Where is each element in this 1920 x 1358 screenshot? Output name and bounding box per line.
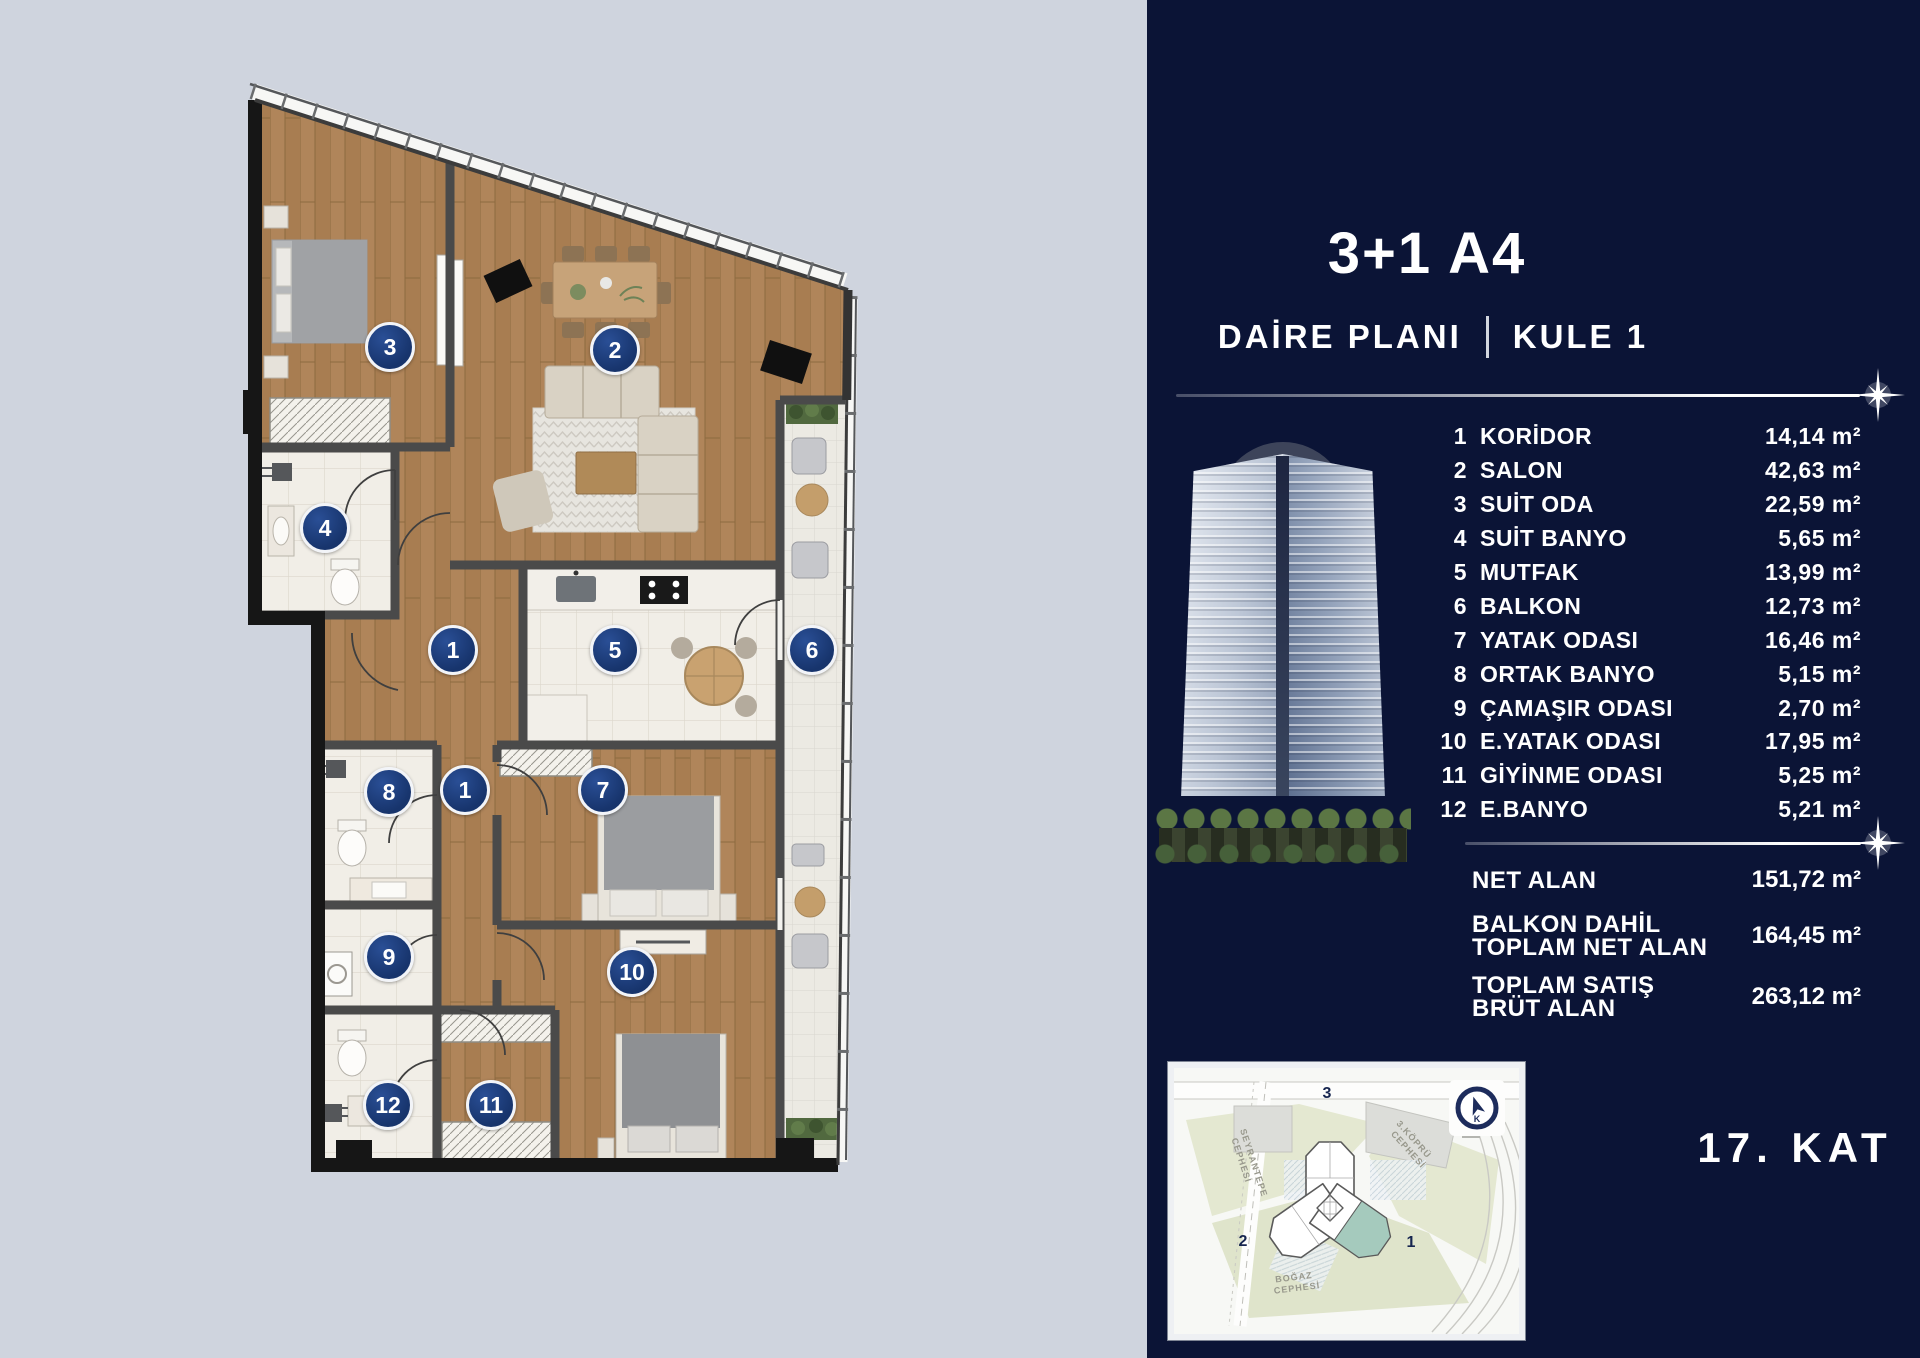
room-marker: 11 [466,1080,516,1130]
room-no: 8 [1425,661,1480,688]
bed-eyatak [598,1034,726,1164]
room-name: E.YATAK ODASI [1480,728,1765,755]
summary-label: TOPLAM SATIŞBRÜT ALAN [1472,974,1654,1020]
room-row: 3SUİT ODA22,59 m² [1425,488,1861,522]
room-name: YATAK ODASI [1480,627,1765,654]
room-name: ÇAMAŞIR ODASI [1480,695,1778,722]
compass-icon: K [1449,1080,1505,1136]
unit-title: 3+1 A4 [1147,220,1707,287]
plan-type-label: DAİRE PLANI [1218,318,1462,356]
room-area: 5,15 m² [1778,661,1861,688]
room-marker: 6 [787,625,837,675]
room-area: 5,21 m² [1778,796,1861,823]
closet-suit [270,398,390,445]
summary-area: 151,72 m² [1752,866,1861,894]
subtitle: DAİRE PLANI KULE 1 [1147,316,1719,358]
tower-spine [1276,456,1289,796]
room-area: 16,46 m² [1765,627,1861,654]
svg-text:K: K [1474,1114,1481,1124]
room-area: 22,59 m² [1765,491,1861,518]
room-area: 5,25 m² [1778,762,1861,789]
summary-row: TOPLAM SATIŞBRÜT ALAN 263,12 m² [1472,974,1861,1020]
room-row: 7YATAK ODASI16,46 m² [1425,623,1861,657]
room-marker: 9 [364,932,414,982]
room-row: 8ORTAK BANYO5,15 m² [1425,657,1861,691]
floor-number: 17. KAT [1645,1124,1920,1172]
room-row: 2SALON42,63 m² [1425,454,1861,488]
map-wing-2: 2 [1239,1233,1248,1250]
area-summary: NET ALAN 151,72 m² BALKON DAHİLTOPLAM NE… [1472,866,1861,1020]
summary-row: BALKON DAHİLTOPLAM NET ALAN 164,45 m² [1472,913,1861,959]
map-wing-3: 3 [1323,1085,1332,1102]
room-name: SALON [1480,457,1765,484]
room-row: 9ÇAMAŞIR ODASI2,70 m² [1425,691,1861,725]
closet-yatak [500,748,592,776]
room-marker: 1 [428,625,478,675]
room-row: 11GİYİNME ODASI5,25 m² [1425,759,1861,793]
room-marker: 12 [363,1080,413,1130]
room-marker: 3 [365,322,415,372]
floor-plan-drawing [0,0,1147,1358]
laundry-fixtures [322,952,352,996]
site-map: 3 2 1 SEYRANTEPE CEPHESİ 3.KÖPRÜ CEPHESİ… [1168,1062,1525,1340]
separator-line [1465,842,1861,845]
tower-facade [1283,454,1387,796]
tower-landscape [1155,842,1411,866]
summary-area: 164,45 m² [1752,922,1861,950]
summary-area: 263,12 m² [1752,983,1861,1011]
separator-line [1176,394,1860,397]
room-area: 17,95 m² [1765,728,1861,755]
room-row: 12E.BANYO5,21 m² [1425,793,1861,827]
wall-duct [243,390,257,434]
wall-corner [336,1140,372,1168]
room-name: KORİDOR [1480,423,1765,450]
room-marker: 7 [578,765,628,815]
room-name: GİYİNME ODASI [1480,762,1778,789]
room-marker: 10 [607,947,657,997]
room-no: 6 [1425,593,1480,620]
room-no: 5 [1425,559,1480,586]
room-name: SUİT BANYO [1480,525,1778,552]
room-row: 10E.YATAK ODASI17,95 m² [1425,725,1861,759]
summary-row: NET ALAN 151,72 m² [1472,866,1861,894]
room-name: ORTAK BANYO [1480,661,1778,688]
room-area: 2,70 m² [1778,695,1861,722]
room-no: 2 [1425,457,1480,484]
room-area: 5,65 m² [1778,525,1861,552]
room-name: MUTFAK [1480,559,1765,586]
room-name: E.BANYO [1480,796,1778,823]
room-row: 1KORİDOR14,14 m² [1425,420,1861,454]
room-no: 7 [1425,627,1480,654]
tower-image [1155,438,1411,862]
tower-facade [1179,454,1283,796]
room-marker: 4 [300,503,350,553]
floor-plan: 3 2 4 1 5 6 8 1 7 9 10 12 11 [0,0,1147,1358]
info-panel: 3+1 A4 DAİRE PLANI KULE 1 1KORİDOR14,14 … [1147,0,1920,1358]
floorplan-poster: 3 2 4 1 5 6 8 1 7 9 10 12 11 3+1 A4 DAİR… [0,0,1920,1358]
room-name: SUİT ODA [1480,491,1765,518]
room-no: 1 [1425,423,1480,450]
summary-label: NET ALAN [1472,869,1596,892]
room-marker: 1 [440,765,490,815]
room-marker: 2 [590,325,640,375]
room-row: 6BALKON12,73 m² [1425,589,1861,623]
room-row: 5MUTFAK13,99 m² [1425,556,1861,590]
tower-label: KULE 1 [1513,318,1648,356]
room-name: BALKON [1480,593,1765,620]
room-no: 10 [1425,728,1480,755]
room-no: 4 [1425,525,1480,552]
room-no: 11 [1425,762,1480,789]
room-no: 9 [1425,695,1480,722]
room-marker: 8 [364,767,414,817]
room-area: 13,99 m² [1765,559,1861,586]
room-row: 4SUİT BANYO5,65 m² [1425,522,1861,556]
room-area: 14,14 m² [1765,423,1861,450]
room-area: 42,63 m² [1765,457,1861,484]
room-area: 12,73 m² [1765,593,1861,620]
room-no: 3 [1425,491,1480,518]
summary-label: BALKON DAHİLTOPLAM NET ALAN [1472,913,1708,959]
divider [1486,316,1489,358]
wall-corner [776,1138,814,1168]
room-list: 1KORİDOR14,14 m² 2SALON42,63 m² 3SUİT OD… [1425,420,1861,827]
map-wing-1: 1 [1407,1234,1416,1251]
room-no: 12 [1425,796,1480,823]
room-marker: 5 [590,625,640,675]
